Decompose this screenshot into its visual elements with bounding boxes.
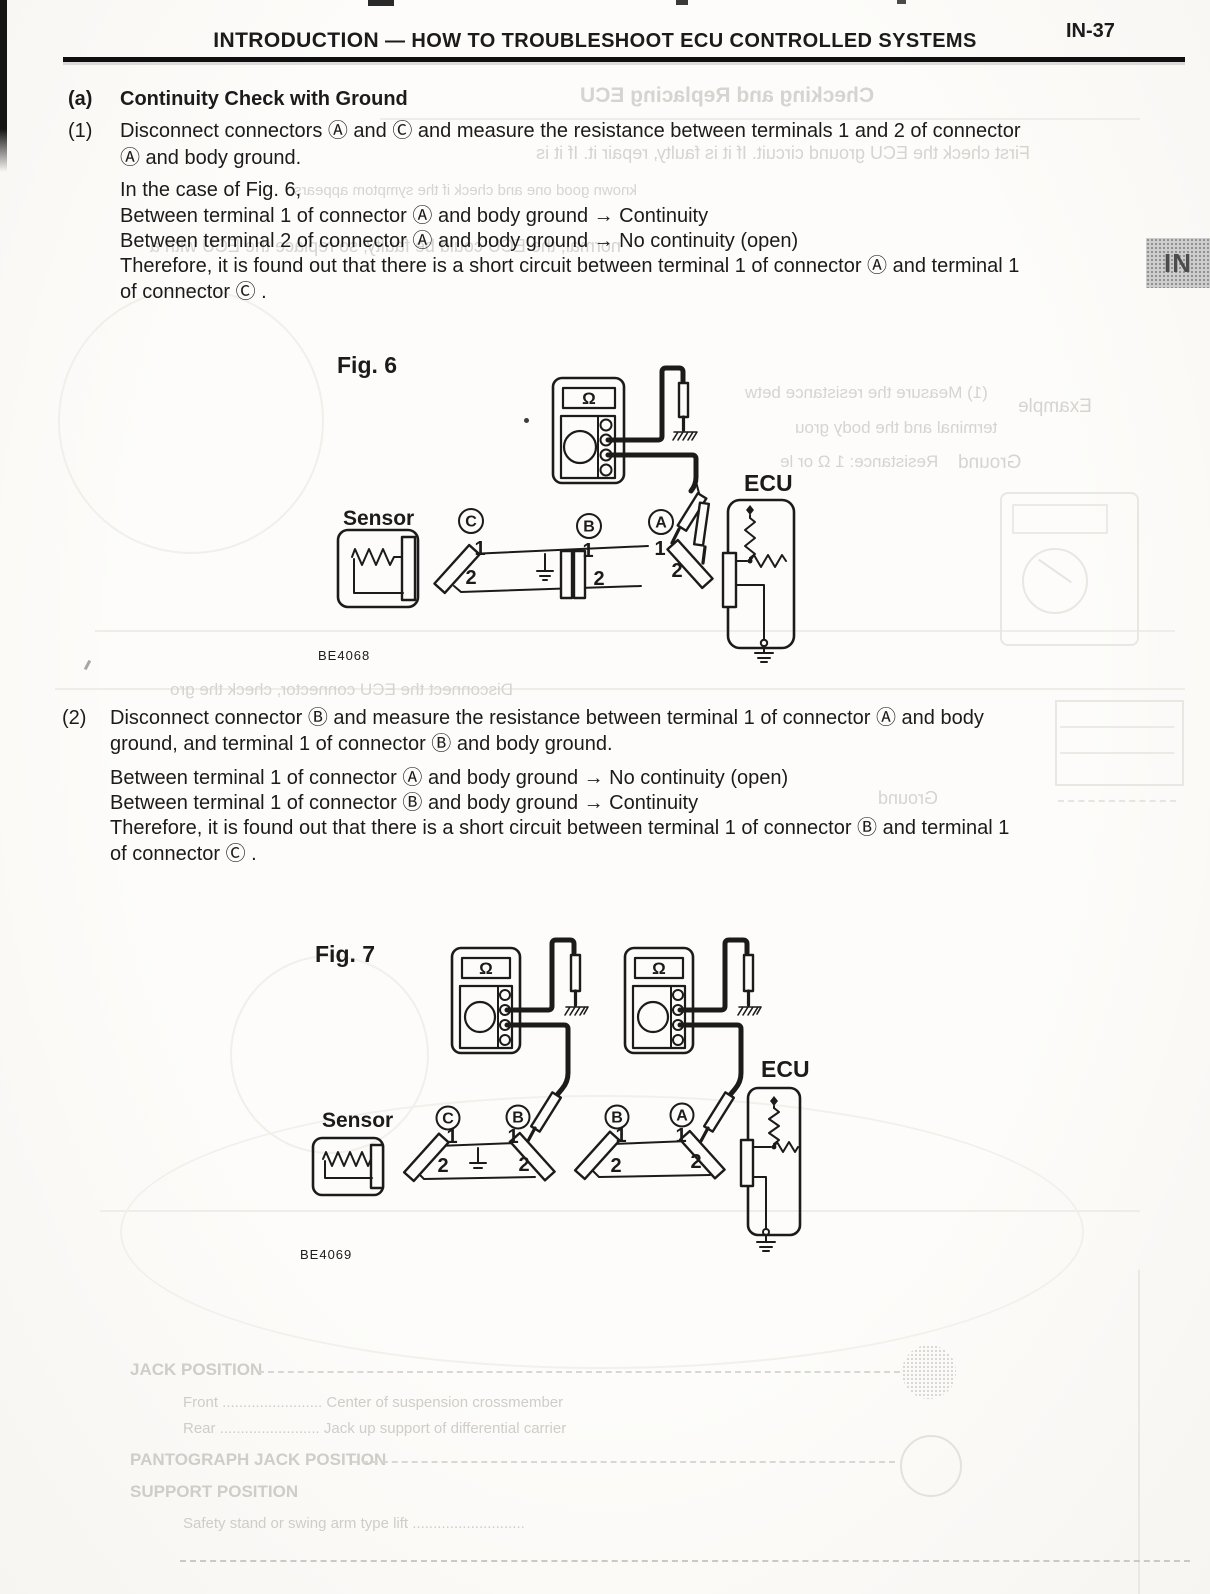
ghost-text: Disconnect the ECU connector, check the … bbox=[170, 680, 513, 700]
resistor-horizontal bbox=[774, 1142, 798, 1152]
step2-conclusion2: of connector Ⓒ . bbox=[110, 841, 257, 867]
label-connector-a: A bbox=[676, 1108, 688, 1125]
fig7-caption: Fig. 7 bbox=[315, 941, 375, 967]
ground-symbol bbox=[537, 554, 553, 580]
terminal-2: 2 bbox=[465, 567, 476, 589]
ghost-circle-bottom bbox=[900, 1435, 962, 1497]
header-separator: — bbox=[385, 30, 405, 52]
ghost-dash-rule bbox=[352, 1461, 895, 1463]
ghost-dashes bbox=[1058, 800, 1176, 802]
ghost-jack-row: Front ........................ Center of… bbox=[183, 1394, 563, 1411]
ghost-text: Example bbox=[1018, 396, 1092, 418]
step1-label: (1) bbox=[68, 118, 92, 144]
diamond-node bbox=[746, 505, 754, 515]
ground-probe bbox=[608, 368, 697, 440]
connector-labels: C B B A 1 2 1 2 1 2 1 2 bbox=[437, 1104, 702, 1178]
terminal-1: 1 bbox=[654, 538, 665, 560]
connector-b bbox=[561, 551, 572, 598]
ecu-connector bbox=[741, 1140, 753, 1186]
step1-result1: Between terminal 1 of connector Ⓐ and bo… bbox=[120, 203, 708, 229]
meter-dial bbox=[564, 431, 596, 463]
multimeter: Ω bbox=[452, 948, 520, 1053]
sensor-box: Sensor bbox=[338, 507, 418, 607]
sensor-label: Sensor bbox=[343, 507, 414, 530]
ghost-meter-dial bbox=[1022, 548, 1088, 614]
ghost-circle-left bbox=[58, 288, 324, 554]
manual-page: Checking and Replacing ECU First check t… bbox=[0, 0, 1210, 1594]
step1-line1: Disconnect connectors Ⓐ and Ⓒ and measur… bbox=[120, 118, 1021, 144]
resistor-vertical bbox=[769, 1108, 779, 1144]
terminal-2: 2 bbox=[437, 1155, 448, 1177]
step2-result1: Between terminal 1 of connector Ⓐ and bo… bbox=[110, 765, 788, 791]
ghost-bottom-rule bbox=[180, 1560, 1190, 1562]
label-connector-c: C bbox=[465, 514, 477, 531]
scan-edge-left bbox=[0, 0, 7, 172]
step1-line2: Ⓐ and body ground. bbox=[120, 145, 301, 171]
label-connector-b: B bbox=[611, 1110, 623, 1127]
ecu-label: ECU bbox=[761, 1056, 810, 1082]
ground-symbol bbox=[470, 1148, 486, 1168]
thumb-tab-label: IN bbox=[1164, 248, 1192, 279]
sensor-label: Sensor bbox=[322, 1109, 393, 1132]
terminal-2: 2 bbox=[671, 560, 682, 582]
section-a-label: (a) bbox=[68, 86, 92, 112]
terminal-2: 2 bbox=[610, 1155, 621, 1177]
figure-code: BE4069 bbox=[300, 1247, 352, 1262]
ecu-box: ECU bbox=[723, 470, 794, 662]
resistor-horizontal bbox=[750, 555, 786, 567]
ghost-jack-heading: JACK POSITION bbox=[130, 1360, 262, 1380]
ghost-line bbox=[1060, 752, 1174, 754]
page-number: IN-37 bbox=[1066, 18, 1115, 44]
ghost-dash-rule bbox=[258, 1371, 900, 1373]
resistor-zigzag bbox=[352, 549, 402, 565]
resistor-vertical bbox=[745, 518, 755, 558]
header-rule bbox=[63, 57, 1185, 62]
ghost-dotted-blob bbox=[902, 1345, 956, 1399]
scan-mark bbox=[676, 0, 688, 5]
resistor-zigzag bbox=[323, 1152, 371, 1166]
fig7-diagram: Fig. 7 Ω Ω bbox=[285, 925, 845, 1270]
terminal-1: 1 bbox=[446, 1126, 457, 1148]
terminal-1: 1 bbox=[507, 1126, 518, 1148]
meter-dial bbox=[465, 1002, 495, 1032]
step1-result2: Between terminal 2 of connector Ⓐ and bo… bbox=[120, 228, 798, 254]
ghost-line bbox=[1060, 726, 1174, 728]
figure-code: BE4068 bbox=[318, 648, 370, 663]
label-connector-b: B bbox=[583, 519, 595, 536]
ghost-jack-row: Safety stand or swing arm type lift ....… bbox=[183, 1515, 525, 1532]
meter-dial bbox=[638, 1002, 668, 1032]
step2-result2: Between terminal 1 of connector Ⓑ and bo… bbox=[110, 790, 698, 816]
ecu-label: ECU bbox=[744, 470, 793, 496]
section-a-title: Continuity Check with Ground bbox=[120, 86, 408, 112]
ghost-vline bbox=[1138, 1270, 1140, 1594]
terminal-2: 2 bbox=[518, 1154, 529, 1176]
ghost-heading: Checking and Replacing ECU bbox=[580, 84, 874, 108]
step2-line1: Disconnect connector Ⓑ and measure the r… bbox=[110, 705, 984, 731]
label-connector-b: B bbox=[512, 1110, 524, 1127]
wire-harness bbox=[404, 1133, 554, 1181]
header-section: INTRODUCTION bbox=[213, 29, 379, 52]
terminal-2: 2 bbox=[690, 1151, 701, 1173]
sensor-box: Sensor bbox=[313, 1109, 393, 1195]
scan-mark bbox=[897, 0, 906, 4]
ghost-text: terminal and the body grou bbox=[795, 418, 997, 438]
page-header-title: INTRODUCTION — HOW TO TROUBLESHOOT ECU C… bbox=[100, 28, 1090, 54]
label-connector-a: A bbox=[655, 515, 667, 532]
ghost-meter-display bbox=[1012, 504, 1108, 534]
ohm-symbol: Ω bbox=[479, 959, 493, 978]
step2-conclusion1: Therefore, it is found out that there is… bbox=[110, 815, 1009, 841]
step2-label: (2) bbox=[62, 705, 86, 731]
step1-conclusion1: Therefore, it is found out that there is… bbox=[120, 253, 1019, 279]
terminal-1: 1 bbox=[675, 1125, 686, 1147]
ghost-text: Ground bbox=[958, 452, 1021, 474]
step2-line2: ground, and terminal 1 of connector Ⓑ an… bbox=[110, 731, 613, 757]
step1-case: In the case of Fig. 6, bbox=[120, 177, 301, 203]
terminal-1: 1 bbox=[615, 1125, 626, 1147]
ghost-connector-sketch bbox=[1055, 700, 1184, 786]
ecu-box: ECU bbox=[741, 1056, 810, 1251]
ohm-symbol: Ω bbox=[652, 959, 666, 978]
ghost-jack-heading: SUPPORT POSITION bbox=[130, 1482, 298, 1502]
section-thumb-tab: IN bbox=[1146, 238, 1210, 288]
terminal-1: 1 bbox=[474, 538, 485, 560]
multimeter: Ω bbox=[625, 948, 693, 1053]
ghost-jack-heading: PANTOGRAPH JACK POSITION bbox=[130, 1450, 386, 1470]
terminal-1: 1 bbox=[582, 540, 593, 562]
ghost-jack-row: Rear ........................ Jack up su… bbox=[183, 1420, 566, 1437]
scan-mark bbox=[368, 0, 394, 6]
ghost-text: known good one and check if the symptom … bbox=[290, 182, 637, 199]
step1-conclusion2: of connector Ⓒ . bbox=[120, 279, 267, 305]
fig6-caption: Fig. 6 bbox=[337, 352, 397, 378]
ground-hatch bbox=[673, 432, 697, 440]
fig6-diagram: Fig. 6 Ω bbox=[310, 345, 820, 675]
terminal-2: 2 bbox=[593, 568, 604, 590]
label-connector-c: C bbox=[442, 1111, 454, 1128]
ecu-connector bbox=[723, 553, 736, 607]
header-subject: HOW TO TROUBLESHOOT ECU CONTROLLED SYSTE… bbox=[411, 30, 976, 52]
scan-speck bbox=[84, 660, 91, 670]
diamond-node bbox=[770, 1096, 778, 1106]
ghost-text: Ground bbox=[878, 788, 938, 809]
ground-symbol bbox=[757, 1235, 775, 1251]
ground-hatch bbox=[738, 1007, 761, 1015]
multimeter: Ω bbox=[553, 378, 624, 483]
ground-hatch bbox=[565, 1007, 588, 1015]
ohm-symbol: Ω bbox=[582, 389, 596, 408]
